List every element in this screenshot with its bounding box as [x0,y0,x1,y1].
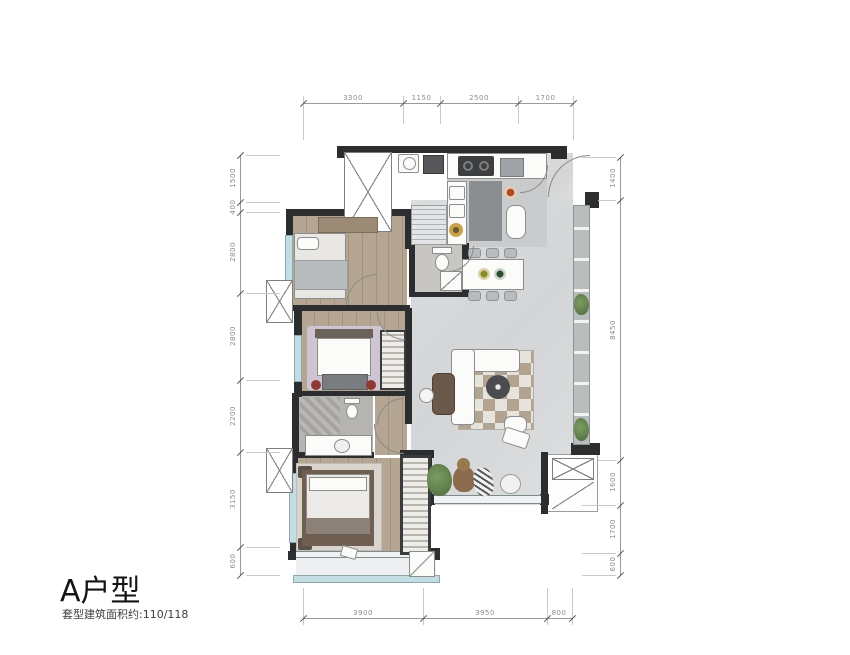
armchair [432,373,455,415]
wall [286,211,293,235]
dim-label: 8450 [609,300,617,360]
unit-title: A户型 [60,566,141,610]
shower-drain [441,272,461,290]
food-plate-icon [504,186,517,199]
balcony-unit-diag [410,552,434,576]
side-table [419,388,434,403]
vanity-sink [334,439,350,453]
prep-sink [449,186,465,200]
shower-area [300,397,340,435]
wall [294,391,408,396]
pillow [309,477,367,491]
dim-label: 3900 [333,609,393,617]
double-bed [317,338,371,376]
wall [286,305,410,311]
burner [479,161,489,171]
wall [288,551,296,560]
coffee-table [486,375,510,399]
toilet-icon [346,404,358,419]
toilet-icon [435,254,449,271]
dim-label: 2500 [440,94,518,102]
dim-label: 600 [229,531,237,591]
washer-drum [403,157,416,170]
appliance-icon [423,155,444,174]
dim-label: 3300 [323,94,383,102]
window-wall-east [573,205,590,445]
dim-label: 3150 [229,469,237,529]
dining-chair [486,291,499,301]
wall [551,146,567,159]
dining-chair [468,291,481,301]
wall [409,243,415,297]
plate-icon [494,268,506,280]
dim-label: 2800 [229,222,237,282]
dining-chair [504,291,517,301]
pot-icon [449,223,463,237]
dim-label: 1700 [518,94,573,102]
red-pillow [366,380,376,390]
burner [463,161,473,171]
dim-label: 1150 [403,94,440,102]
dining-chair [504,248,517,258]
dining-table [462,259,524,290]
hall-closet [411,205,447,245]
wardrobe [400,455,431,555]
window-bedroom-2 [294,335,302,382]
teddy-head [457,458,470,471]
headboard [315,329,373,338]
ac-unit-box [266,280,293,323]
pillow [297,237,319,250]
dim-label: 1400 [609,148,617,208]
wall [405,308,412,424]
red-pillow [311,380,321,390]
wall [409,292,469,297]
floor-plan-sheet: 3300 1150 2500 1700 3900 3950 800 1500 4… [0,0,850,655]
ac-unit-box [266,448,293,493]
desk [318,217,378,233]
bed-throw [306,518,370,534]
bed-bench [322,374,368,390]
sofa-chaise [470,349,520,372]
plant-icon [427,464,452,496]
dim-label: 3950 [455,609,515,617]
wall [294,305,302,335]
dining-chair [486,248,499,258]
plate-icon [478,268,490,280]
plant-icon [574,294,589,315]
ac-unit-box [552,458,594,480]
dim-label: 600 [609,534,617,594]
unit-area-note: 套型建筑面积约:110/118 [62,606,188,622]
dim-label: 2800 [229,306,237,366]
kitchen-island [469,181,502,241]
wall [540,494,549,505]
entry-bench [506,205,526,239]
blanket [294,260,348,290]
dim-label: 2200 [229,386,237,446]
window-living-south [434,495,541,504]
plant-icon [574,418,589,441]
dim-label: 800 [545,609,573,617]
stool [500,474,521,494]
wall [292,393,299,457]
prep-sink [449,204,465,218]
